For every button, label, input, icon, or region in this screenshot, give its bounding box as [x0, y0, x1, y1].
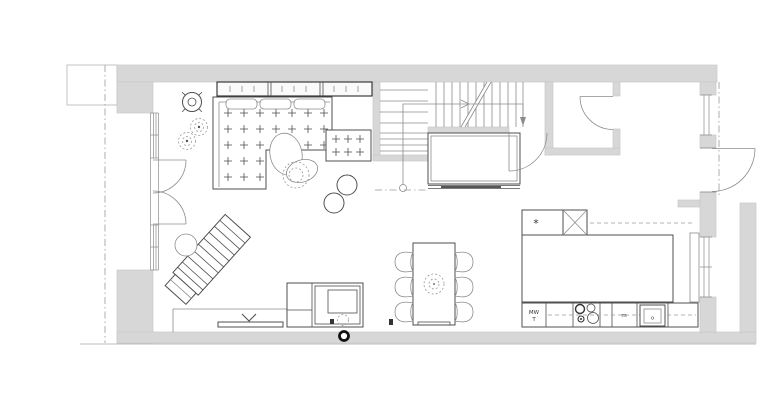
- understair-closet: [428, 133, 520, 189]
- entry-door: [700, 148, 755, 192]
- sideboard: [217, 82, 372, 96]
- window: [700, 237, 712, 297]
- floor-plan-page: * MW T m o: [0, 0, 768, 409]
- side-table: [175, 234, 197, 256]
- walk-line-arrowhead: [520, 117, 526, 126]
- dining-chair: [395, 252, 413, 272]
- porch-slab: [67, 65, 117, 105]
- kitchen-wall-stub: [678, 200, 700, 207]
- understair-wall: [428, 127, 509, 133]
- floor-plan-canvas: * MW T m o: [0, 0, 768, 409]
- sink-label: o: [651, 316, 654, 322]
- closet-rod: [441, 186, 501, 188]
- dining-chair: [395, 277, 413, 297]
- stair-treads-lower: [380, 90, 428, 151]
- radiator-panel: [690, 233, 699, 302]
- window: [151, 225, 159, 270]
- staircase: [375, 82, 526, 192]
- lounger: [163, 214, 250, 306]
- stair-bottom-wall: [373, 155, 428, 161]
- kitchen: * MW T m o: [522, 210, 699, 327]
- floor-step-line: [173, 309, 287, 332]
- wc-wall-left: [545, 82, 553, 155]
- wc-door: [580, 97, 613, 130]
- dining-chairs-right: [455, 252, 473, 322]
- floor-outlet: [389, 319, 393, 325]
- wc-wall-right-lower: [613, 129, 620, 148]
- dining-chair: [395, 302, 413, 322]
- sofa-back-cushion: [226, 99, 257, 109]
- wc-wall-right-upper: [613, 82, 620, 96]
- plant-pot: [182, 92, 202, 112]
- kitchen-sink: o: [640, 305, 665, 326]
- side-yard-wall: [740, 203, 756, 332]
- dining-chair: [455, 277, 473, 297]
- fridge-unit: [522, 210, 563, 235]
- kitchen-tall-units: *: [522, 210, 587, 235]
- m-unit-label: m: [621, 313, 626, 319]
- french-doors: [153, 160, 186, 224]
- shrub: [191, 119, 208, 136]
- pouf: [324, 193, 344, 213]
- fridge-star-label: *: [533, 217, 539, 230]
- kitchen-island: [522, 235, 673, 302]
- dining-chair: [455, 302, 473, 322]
- stair-side-wall: [373, 82, 380, 160]
- wc-wall-bottom: [545, 148, 620, 155]
- sofa-back-cushion: [294, 99, 325, 109]
- dining-area: [395, 243, 473, 325]
- tv-mark: [242, 314, 256, 321]
- kitchen-base-cabinets: MW T m o: [522, 303, 698, 327]
- window: [151, 113, 159, 158]
- flue: [340, 332, 349, 341]
- living-room: [163, 82, 393, 341]
- microwave-label: MW: [529, 310, 540, 316]
- shrub: [179, 133, 196, 150]
- tv-bench: [218, 314, 283, 327]
- sofa-back-cushion: [260, 99, 291, 109]
- tower-label: T: [531, 317, 536, 323]
- pouf: [337, 175, 357, 195]
- ottoman: [326, 130, 371, 161]
- window: [700, 95, 712, 135]
- dining-chairs-left: [395, 252, 413, 322]
- dining-chair: [455, 252, 473, 272]
- floor-outlet: [330, 319, 334, 324]
